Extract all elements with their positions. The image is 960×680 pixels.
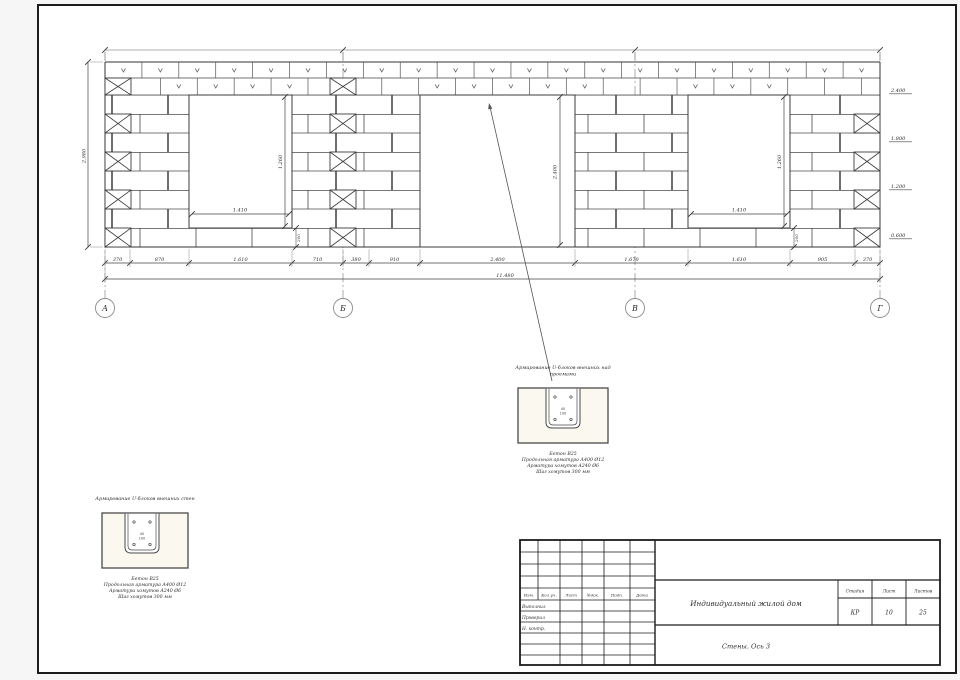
rev-col-izm: Изм. bbox=[523, 593, 534, 598]
detail-inner-dim: 40 bbox=[561, 407, 565, 411]
role-row-3: Н. контр. bbox=[521, 627, 545, 632]
chain-dim-label: 370 bbox=[863, 257, 873, 263]
total-length-label: 11.480 bbox=[496, 273, 514, 279]
axis-label-v: В bbox=[631, 304, 638, 313]
sill-dim-label: 200 bbox=[296, 234, 301, 243]
detail-caption: Арматура хомутов А240 Ø6 bbox=[526, 462, 599, 469]
sheet-number: 10 bbox=[885, 610, 893, 617]
wall-height-label: 2.980 bbox=[82, 148, 88, 164]
chain-dim-label: 1.610 bbox=[732, 257, 747, 263]
elevation-mark-label: 1.200 bbox=[891, 184, 906, 190]
chain-dim-label: 2.400 bbox=[489, 257, 505, 263]
stage-value: КР bbox=[850, 610, 861, 617]
elevation-mark-label: 0.600 bbox=[891, 233, 906, 239]
construction-drawing-sheet: 3708701.6107103809102.4001.6701.61090537… bbox=[0, 0, 960, 680]
detail-caption: Шаг хомутов 300 мм bbox=[535, 469, 590, 475]
sheet-name: Стены. Ось 3 bbox=[722, 643, 770, 651]
rev-col-data: Дата bbox=[635, 593, 648, 598]
detail-caption: Арматура хомутов А240 Ø6 bbox=[108, 587, 181, 594]
stage-header-stadia: Стадия bbox=[846, 590, 865, 595]
masonry-pier bbox=[189, 228, 292, 247]
detail-caption: Продольная арматура А400 Ø12 bbox=[103, 581, 186, 588]
chain-dim-label: 710 bbox=[313, 257, 323, 263]
role-row-1: Выполнил bbox=[521, 605, 546, 610]
elevation-mark-label: 1.800 bbox=[891, 136, 906, 142]
sill-dim-label: 200 bbox=[794, 234, 799, 243]
chain-dim-label: 1.670 bbox=[624, 257, 639, 263]
detail-caption: Шаг хомутов 300 мм bbox=[117, 594, 172, 600]
window-width-label: 1.410 bbox=[732, 208, 747, 214]
sheets-total: 25 bbox=[918, 610, 927, 617]
detail-title: Армирование U-блоков внешних над bbox=[514, 364, 610, 371]
rev-col-koluch: Кол.уч. bbox=[540, 593, 556, 598]
stage-header-list: Лист bbox=[881, 590, 895, 595]
chain-dim-label: 870 bbox=[155, 257, 165, 263]
masonry-pier bbox=[575, 95, 688, 247]
detail-title: проемами bbox=[550, 372, 576, 378]
rev-col-dok: №док. bbox=[586, 593, 599, 598]
axis-label-g: Г bbox=[876, 304, 883, 313]
chain-dim-label: 910 bbox=[390, 257, 400, 263]
rev-col-list: Лист bbox=[564, 593, 577, 598]
detail-title: Армирование U-блоков внешних стен bbox=[94, 495, 194, 502]
rev-col-podp: Подп. bbox=[610, 593, 623, 598]
role-row-2: Проверил bbox=[521, 616, 545, 621]
axis-label-b: Б bbox=[339, 304, 346, 313]
detail-caption: Бетон В25 bbox=[130, 576, 158, 582]
window-height-label: 1.260 bbox=[278, 154, 284, 169]
door-height-label: 2.400 bbox=[553, 164, 559, 180]
detail-inner-dim: 100 bbox=[139, 537, 145, 541]
masonry-pier bbox=[688, 228, 790, 247]
detail-inner-dim: 40 bbox=[140, 532, 144, 536]
detail-caption: Продольная арматура А400 Ø12 bbox=[521, 456, 604, 463]
elevation-mark-label: 2.400 bbox=[890, 88, 906, 94]
window-width-label: 1.410 bbox=[233, 208, 248, 214]
chain-dim-label: 370 bbox=[113, 257, 123, 263]
window-height-label: 1.260 bbox=[777, 154, 783, 169]
project-name: Индивидуальный жилой дом bbox=[689, 599, 801, 608]
chain-dim-label: 905 bbox=[818, 257, 828, 263]
detail-caption: Бетон В25 bbox=[548, 451, 576, 457]
axis-label-a: А bbox=[101, 304, 108, 313]
detail-inner-dim: 100 bbox=[560, 412, 566, 416]
title-block: Изм. Кол.уч. Лист №док. Подп. Дата Выпол… bbox=[520, 540, 940, 665]
chain-dim-label: 1.610 bbox=[233, 257, 248, 263]
stage-header-listov: Листов bbox=[913, 590, 933, 595]
chain-dim-label: 380 bbox=[351, 257, 361, 263]
